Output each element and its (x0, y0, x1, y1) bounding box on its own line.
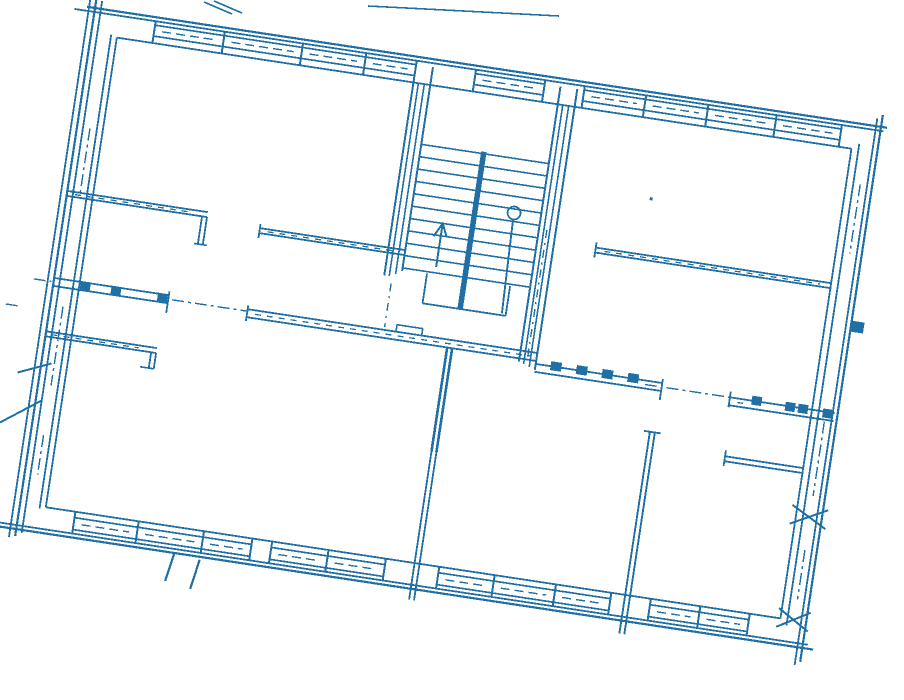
ribbon-windows (72, 20, 842, 638)
axis-lines (0, 61, 860, 600)
scan-artifacts (204, 1, 559, 16)
interior-walls (11, 163, 854, 680)
floor-plan-drawing (0, 0, 904, 700)
staircase (374, 65, 578, 370)
exterior-walls (0, 0, 894, 667)
scanned-floor-plan-page (0, 0, 904, 700)
floor-plan (0, 0, 896, 683)
